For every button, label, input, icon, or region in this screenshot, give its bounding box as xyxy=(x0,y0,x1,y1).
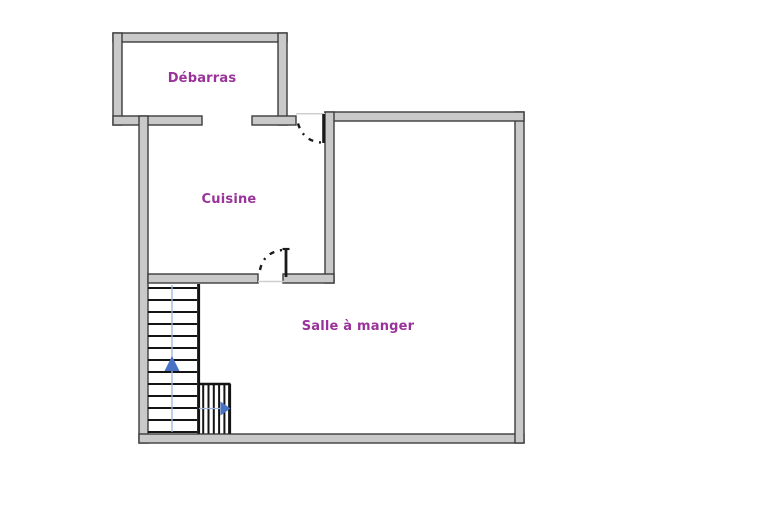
interior-door-swing-arc xyxy=(260,250,283,270)
staircase xyxy=(148,284,231,434)
room-label-cuisine: Cuisine xyxy=(202,192,257,207)
room-labels: Débarras Cuisine Salle à manger xyxy=(168,71,415,334)
room-label-salle-a-manger: Salle à manger xyxy=(302,319,415,334)
stair-up-arrow-icon xyxy=(165,356,180,371)
wall-cuisine-right xyxy=(325,112,334,283)
wall-left-exterior xyxy=(139,116,148,443)
floor-plan-drawing: Débarras Cuisine Salle à manger xyxy=(0,0,783,529)
wall-right-exterior xyxy=(515,112,524,443)
room-label-debarras: Débarras xyxy=(168,71,237,86)
wall-debarras-bottom-left xyxy=(113,116,202,125)
wall-cuisine-bottom-right xyxy=(283,274,334,283)
walls xyxy=(113,33,524,443)
wall-bottom-exterior xyxy=(139,434,524,443)
wall-debarras-right xyxy=(278,33,287,125)
wall-salle-top xyxy=(325,112,524,121)
floor-plan-canvas: Débarras Cuisine Salle à manger xyxy=(0,0,783,529)
wall-debarras-left xyxy=(113,33,122,125)
door-thresholds xyxy=(258,114,325,282)
wall-debarras-bottom-right xyxy=(252,116,296,125)
wall-cuisine-bottom-left xyxy=(148,274,258,283)
doors xyxy=(260,114,324,277)
entrance-door-swing-arc xyxy=(298,124,322,143)
wall-debarras-top xyxy=(113,33,287,42)
